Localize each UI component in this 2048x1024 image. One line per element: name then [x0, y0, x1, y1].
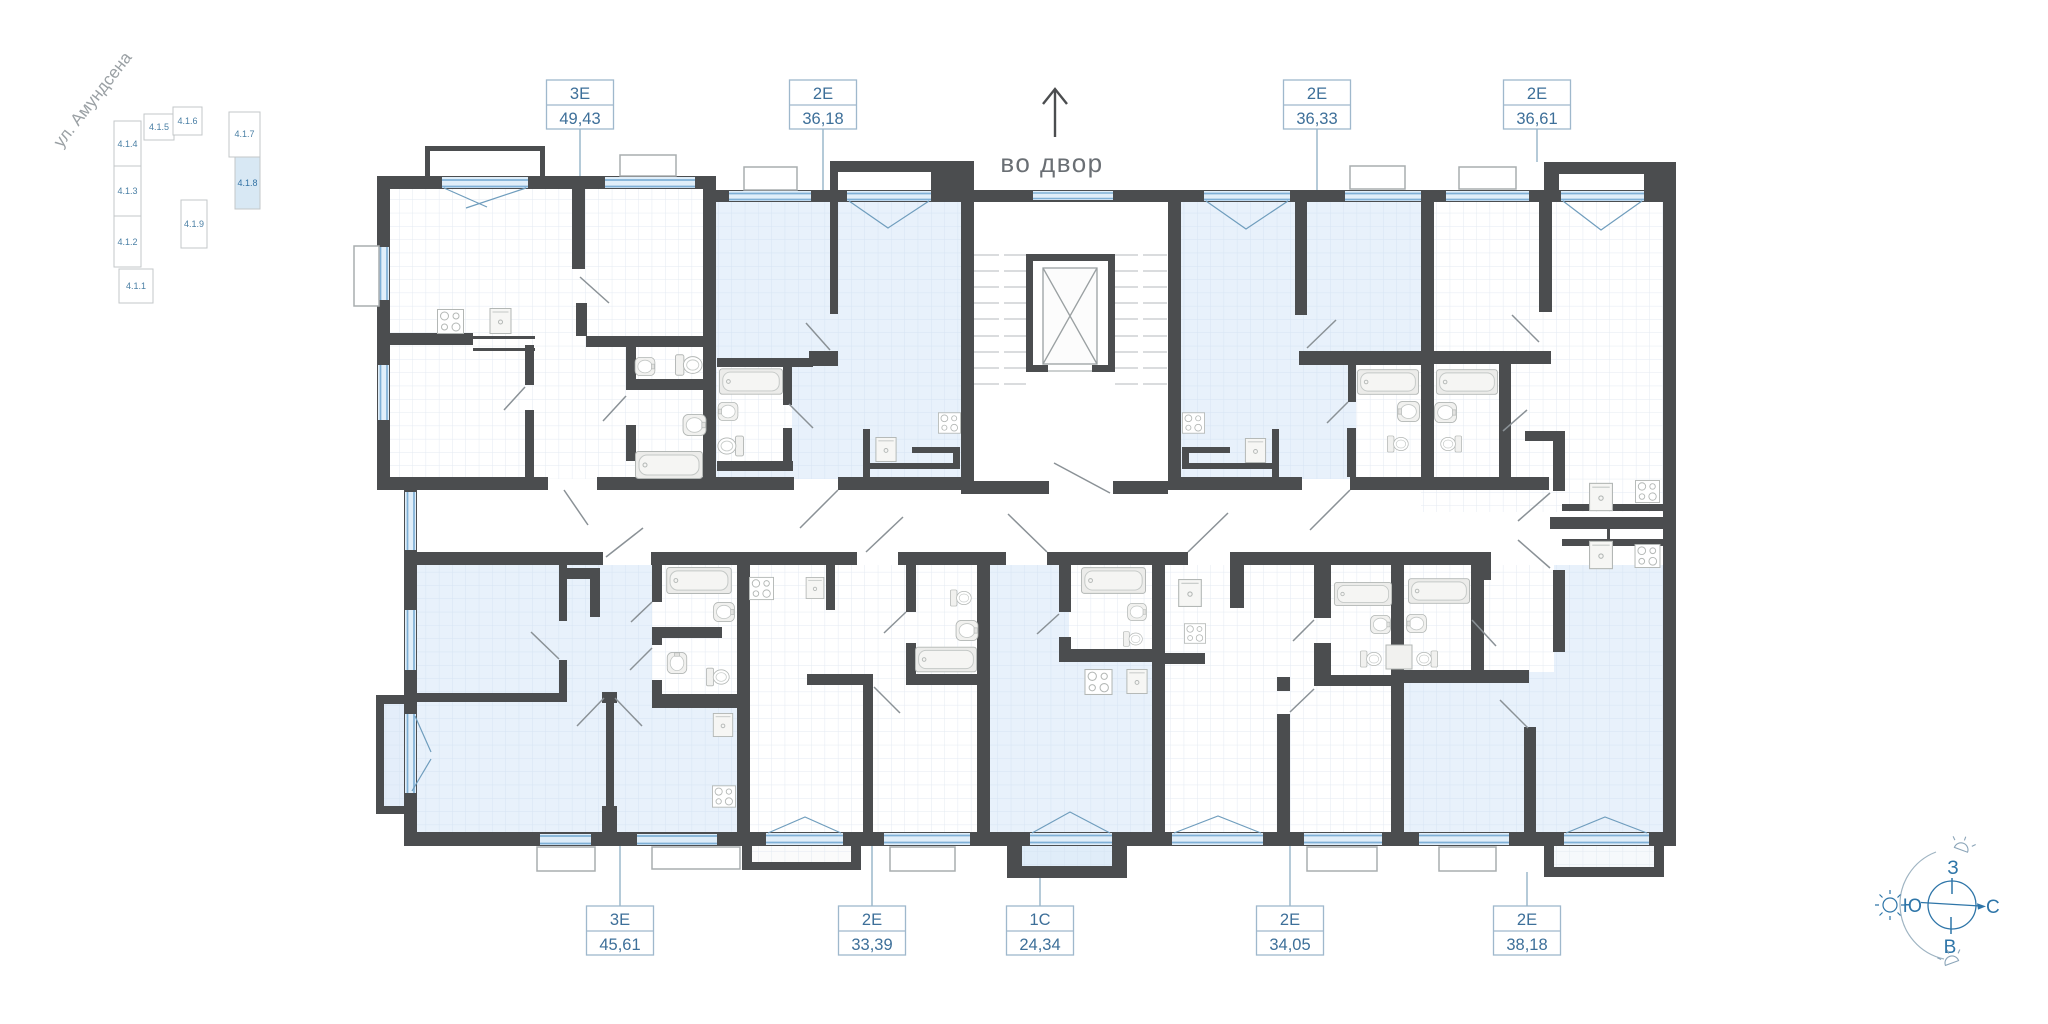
svg-text:36,61: 36,61	[1516, 110, 1557, 128]
svg-text:4.1.2: 4.1.2	[117, 237, 137, 247]
svg-text:2Е: 2Е	[813, 85, 833, 103]
svg-text:2Е: 2Е	[1280, 911, 1300, 929]
svg-text:4.1.8: 4.1.8	[237, 178, 257, 188]
svg-text:45,61: 45,61	[599, 936, 640, 954]
svg-text:2Е: 2Е	[862, 911, 882, 929]
svg-text:4.1.5: 4.1.5	[149, 122, 169, 132]
svg-text:Ю: Ю	[1903, 896, 1922, 917]
svg-text:2Е: 2Е	[1517, 911, 1537, 929]
svg-text:4.1.4: 4.1.4	[117, 139, 137, 149]
svg-text:во двор: во двор	[1000, 148, 1103, 178]
svg-text:4.1.7: 4.1.7	[234, 129, 254, 139]
svg-text:49,43: 49,43	[559, 110, 600, 128]
svg-text:3Е: 3Е	[610, 911, 630, 929]
svg-text:В: В	[1944, 937, 1957, 958]
svg-text:34,05: 34,05	[1269, 936, 1310, 954]
svg-text:2Е: 2Е	[1307, 85, 1327, 103]
svg-text:2Е: 2Е	[1527, 85, 1547, 103]
svg-text:4.1.1: 4.1.1	[126, 281, 146, 291]
svg-text:33,39: 33,39	[851, 936, 892, 954]
svg-text:4.1.9: 4.1.9	[184, 219, 204, 229]
svg-text:24,34: 24,34	[1019, 936, 1060, 954]
svg-text:38,18: 38,18	[1506, 936, 1547, 954]
svg-text:З: З	[1947, 858, 1958, 879]
svg-text:3Е: 3Е	[570, 85, 590, 103]
svg-text:1С: 1С	[1029, 911, 1050, 929]
svg-text:4.1.6: 4.1.6	[177, 116, 197, 126]
svg-text:36,18: 36,18	[802, 110, 843, 128]
svg-text:4.1.3: 4.1.3	[117, 186, 137, 196]
svg-text:С: С	[1986, 897, 2000, 918]
svg-text:36,33: 36,33	[1296, 110, 1337, 128]
